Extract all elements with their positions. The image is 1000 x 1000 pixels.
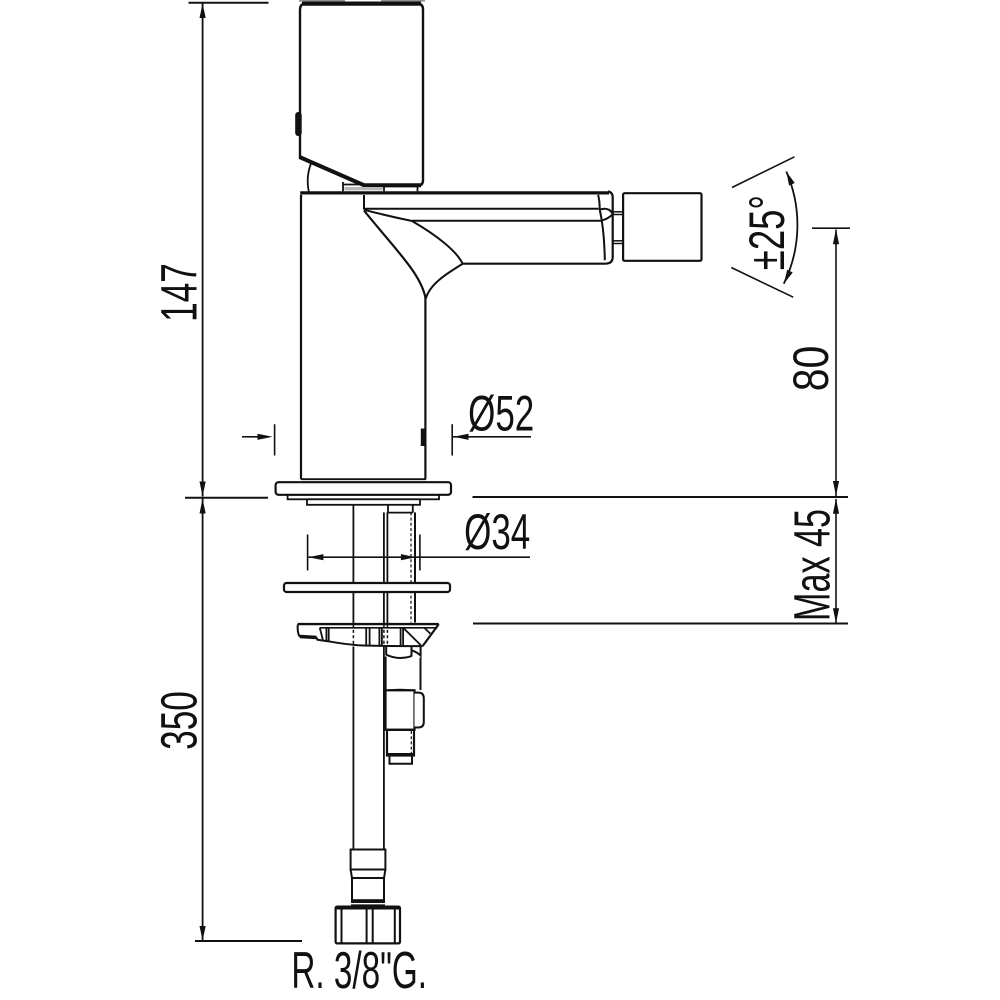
svg-text:80: 80	[783, 346, 839, 392]
svg-text:R. 3/8"G.: R. 3/8"G.	[291, 942, 427, 1000]
svg-text:350: 350	[151, 691, 208, 750]
svg-text:Ø34: Ø34	[464, 505, 530, 561]
svg-text:147: 147	[151, 263, 208, 322]
svg-text:Max 45: Max 45	[785, 509, 841, 621]
svg-text:Ø52: Ø52	[468, 386, 534, 442]
svg-text:±25°: ±25°	[739, 195, 795, 270]
